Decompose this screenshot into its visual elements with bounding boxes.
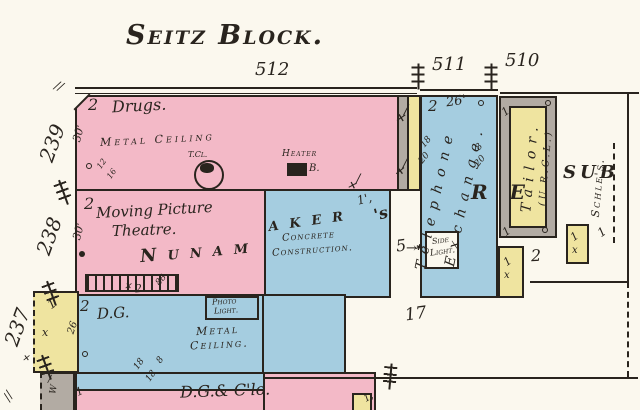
dg-stories: 2 bbox=[80, 299, 90, 314]
chimney-label: T.Cl. bbox=[188, 151, 207, 159]
solid-dot-icon bbox=[79, 251, 85, 257]
theatre-name-line2: Theatre. bbox=[112, 222, 177, 239]
chimney-blob-icon bbox=[200, 163, 214, 173]
firewall-icon bbox=[412, 67, 425, 87]
lot-line-right-dashed bbox=[627, 282, 629, 377]
open-circle-icon bbox=[86, 163, 92, 169]
dg-ceiling-line2: Ceiling. bbox=[190, 337, 249, 351]
porch-mark: ✕ bbox=[124, 283, 132, 292]
schles-label: Schle's. bbox=[590, 157, 606, 218]
lot-number: 17 bbox=[404, 305, 428, 325]
street-frontline-512 bbox=[75, 87, 417, 94]
outbuilding-b bbox=[566, 224, 589, 264]
corner-slash-mark: ∕∕ bbox=[1, 389, 15, 402]
drugs-name: Drugs. bbox=[112, 97, 167, 116]
open-circle-icon bbox=[478, 100, 484, 106]
firewall-icon bbox=[485, 67, 498, 87]
outbuilding-a bbox=[498, 246, 524, 298]
address-238: 238 bbox=[33, 215, 65, 258]
open-circle-icon bbox=[82, 351, 88, 357]
gray-strip-w-label: W bbox=[49, 384, 59, 395]
resub-label-sub: SUB bbox=[563, 164, 619, 182]
resub-label-re: RE bbox=[471, 182, 547, 202]
address-239: 239 bbox=[36, 122, 68, 165]
heater-box-icon bbox=[287, 163, 307, 176]
photo-light-line2: Light. bbox=[214, 306, 239, 315]
schles-mark: 1 bbox=[595, 225, 608, 239]
lot-line-right-solid bbox=[627, 93, 629, 282]
drugs-stories: 2 bbox=[88, 97, 98, 113]
rear-510-two: 2 bbox=[531, 248, 542, 265]
gray-strip-slash: ∕ bbox=[48, 375, 51, 385]
heater-suffix: B. bbox=[309, 164, 320, 174]
b237-outside-x: ✕ bbox=[22, 355, 30, 364]
outbuilding-b-x: x bbox=[572, 246, 578, 256]
b237-x: x bbox=[42, 327, 48, 338]
window-mark: ∕ bbox=[356, 173, 360, 186]
dg-name: D.G. bbox=[97, 305, 130, 322]
firewall-icon bbox=[53, 181, 72, 204]
map-title: Seitz Block. bbox=[126, 22, 324, 49]
heater-label: Heater bbox=[282, 150, 317, 159]
lot-510-rear-line bbox=[530, 281, 627, 283]
outbuilding-a-x: x bbox=[504, 271, 510, 281]
phone-width: 26' bbox=[445, 94, 467, 110]
schles-dashed-line bbox=[613, 143, 615, 243]
open-circle-icon bbox=[542, 227, 548, 233]
sanborn-map-seitz-block: Seitz Block. 512 511 510 239 238 237 ∕∕ … bbox=[0, 0, 640, 410]
address-512: 512 bbox=[255, 61, 289, 79]
open-circle-icon bbox=[545, 100, 551, 106]
dry-goods-partition-line bbox=[262, 296, 264, 372]
five-asterisk-icon: ✱ bbox=[415, 244, 422, 252]
corner-slash-mark: ∕∕ bbox=[53, 79, 65, 93]
phone-stories: 2 bbox=[428, 99, 438, 114]
theatre-stories: 2 bbox=[84, 196, 94, 212]
street-frontline-510 bbox=[500, 92, 639, 94]
firewall-icon bbox=[383, 366, 398, 387]
address-237: 237 bbox=[1, 306, 33, 349]
lot-bottom-line bbox=[264, 377, 638, 379]
address-511: 511 bbox=[432, 56, 466, 74]
address-510: 510 bbox=[505, 52, 539, 70]
porch-num: 2. bbox=[135, 283, 146, 295]
dgclo-name: D.G.& C'lo. bbox=[180, 381, 271, 400]
nunamaker-story-mark: 1', bbox=[356, 191, 373, 206]
window-mark: ∕ bbox=[403, 157, 407, 170]
dg-ceiling-line1: Metal bbox=[196, 324, 240, 337]
window-mark: ∕ bbox=[404, 104, 408, 117]
